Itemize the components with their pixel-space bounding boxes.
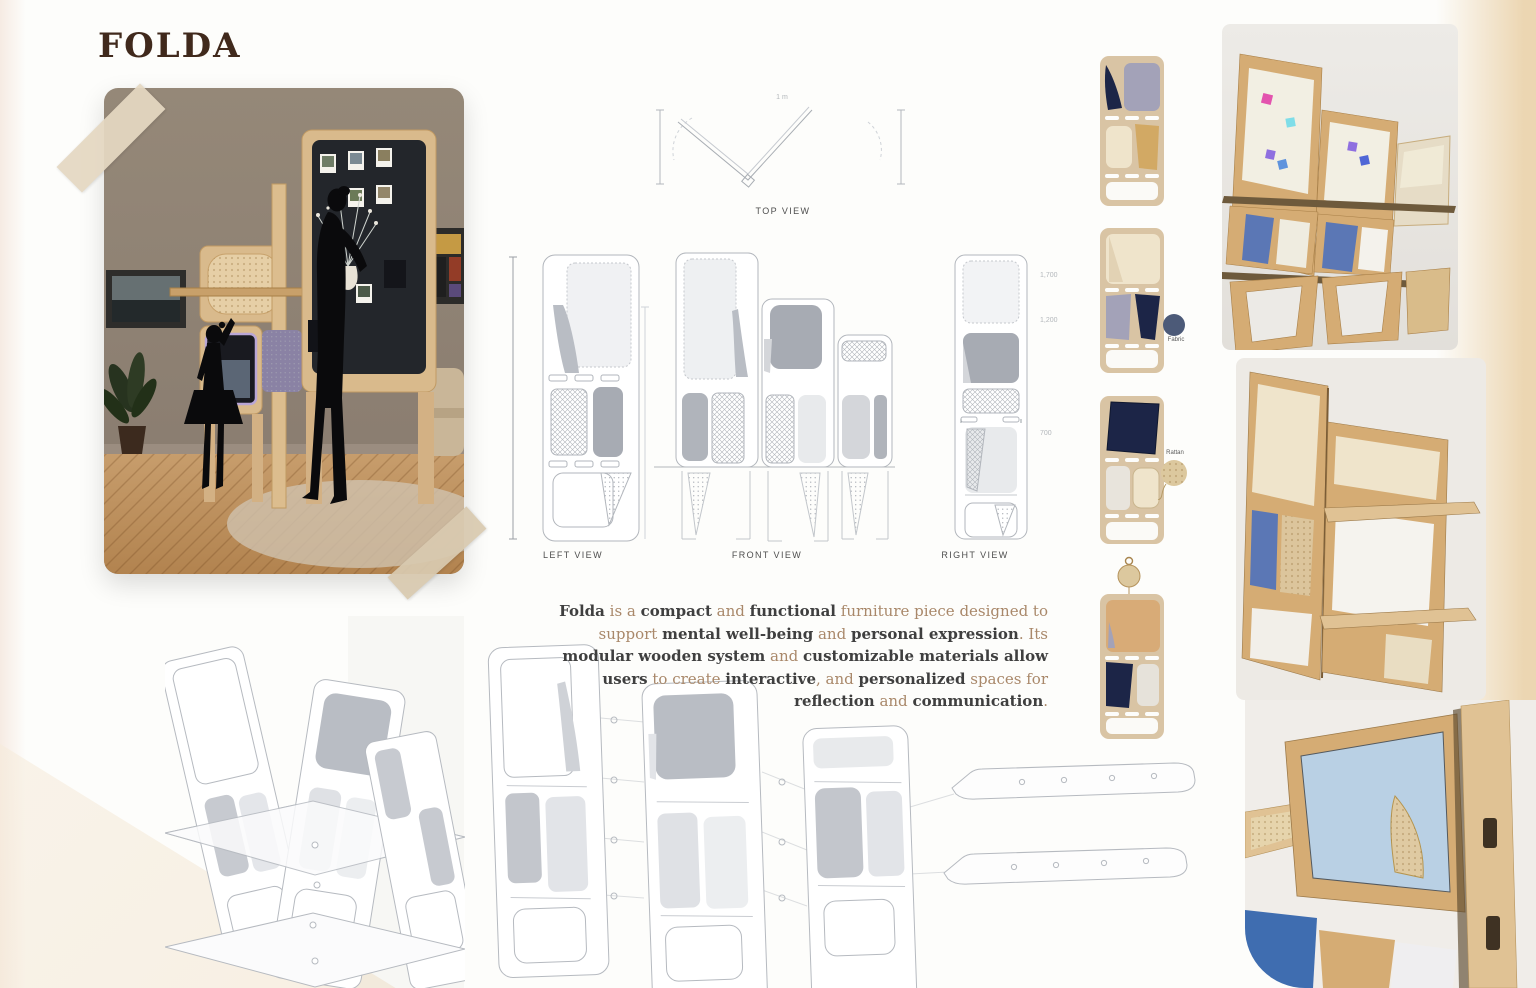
render-detail-photo [1245,700,1536,988]
fabric-label: Fabric [1158,337,1194,343]
exploded-panel-2 [642,680,768,988]
material-swatch-1 [1097,56,1167,206]
product-description: Folda is a compact and functional furnit… [528,600,1048,713]
top-view-dimension: 1 m [762,94,802,101]
right-view-drawing [925,247,1075,552]
left-view-label: LEFT VIEW [518,550,628,560]
rattan-dot [1156,456,1196,500]
top-view-label: TOP VIEW [728,206,838,216]
round-hanger-icon [1112,556,1146,596]
hero-photo-scene [104,88,464,574]
page-title: FOLDA [98,26,242,66]
rattan-label: Rattan [1155,450,1195,456]
top-view-drawing [640,92,930,204]
hero-photo [104,88,464,574]
shelf-part-drawing-2 [944,848,1187,884]
exploded-connectors-1 [611,717,617,899]
right-view-dimension-1: 1,700 [1040,272,1082,279]
render-front-perspective [1222,24,1458,350]
framed-landscape [106,270,186,328]
shelf-part-drawing-1 [952,763,1195,799]
right-view-dimension-2: 1,200 [1040,317,1082,324]
right-view-label: RIGHT VIEW [920,550,1030,560]
front-view-drawing [652,247,897,552]
left-view-drawing [505,247,655,547]
right-view-dimension-3: 700 [1040,430,1082,437]
design-board: FOLDA [0,0,1536,988]
material-swatch-2 [1097,228,1167,373]
render-side-perspective [1236,358,1486,700]
exploded-panel-3 [802,725,917,988]
front-view-label: FRONT VIEW [712,550,822,560]
shelf-frame [384,260,406,288]
isometric-drawing [165,595,465,988]
